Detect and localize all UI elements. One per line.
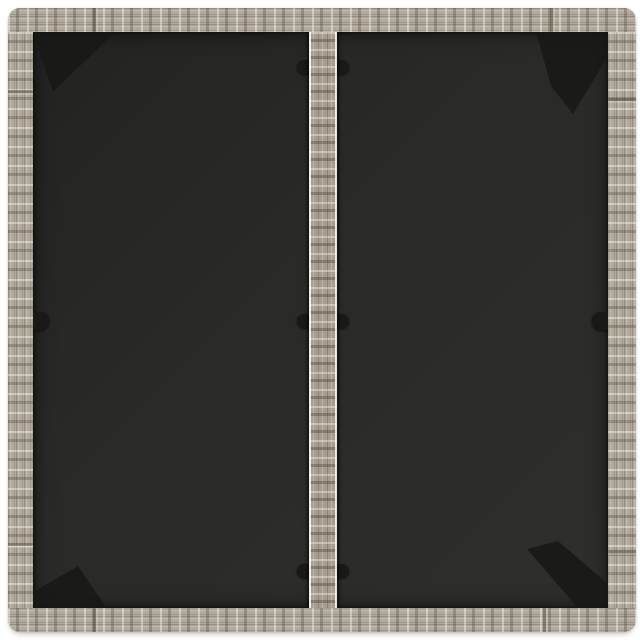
frame-edge-right: [608, 32, 636, 608]
frame-joint: [93, 8, 96, 32]
frame-joint: [8, 90, 33, 93]
center-rattan-strip: [309, 32, 337, 608]
frame-joint: [543, 608, 546, 632]
glass-area: [33, 32, 608, 608]
frame-joint: [8, 543, 33, 546]
glass-clip-left-frame: [33, 312, 49, 330]
frame-edge-top: [8, 8, 636, 32]
frame-joint: [93, 608, 96, 632]
product-photo: [0, 0, 640, 640]
glass-clip-right-frame: [592, 312, 608, 330]
frame-joint: [550, 8, 553, 32]
frame-joint: [608, 550, 636, 553]
frame-edge-left: [8, 32, 33, 608]
frame-joint: [608, 98, 636, 101]
frame-edge-bottom: [8, 608, 636, 632]
table-top: [8, 8, 636, 632]
